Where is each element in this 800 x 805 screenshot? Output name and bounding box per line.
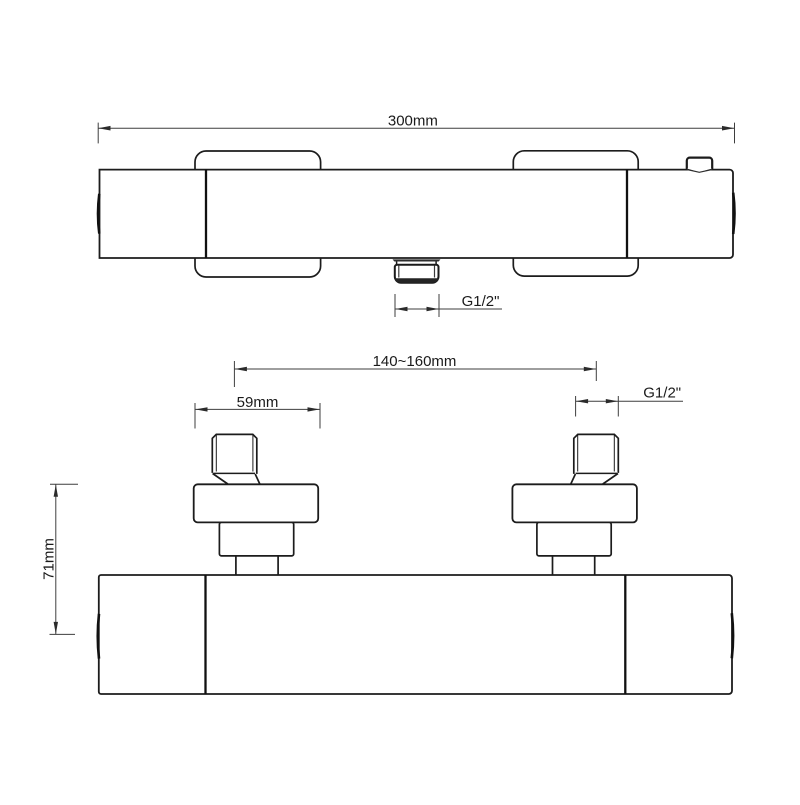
svg-text:300mm: 300mm (388, 112, 438, 129)
svg-text:G1/2": G1/2" (643, 384, 681, 401)
svg-text:59mm: 59mm (237, 394, 279, 411)
svg-text:71mm: 71mm (41, 538, 58, 580)
svg-text:140~160mm: 140~160mm (373, 353, 457, 370)
svg-text:G1/2": G1/2" (462, 293, 500, 310)
